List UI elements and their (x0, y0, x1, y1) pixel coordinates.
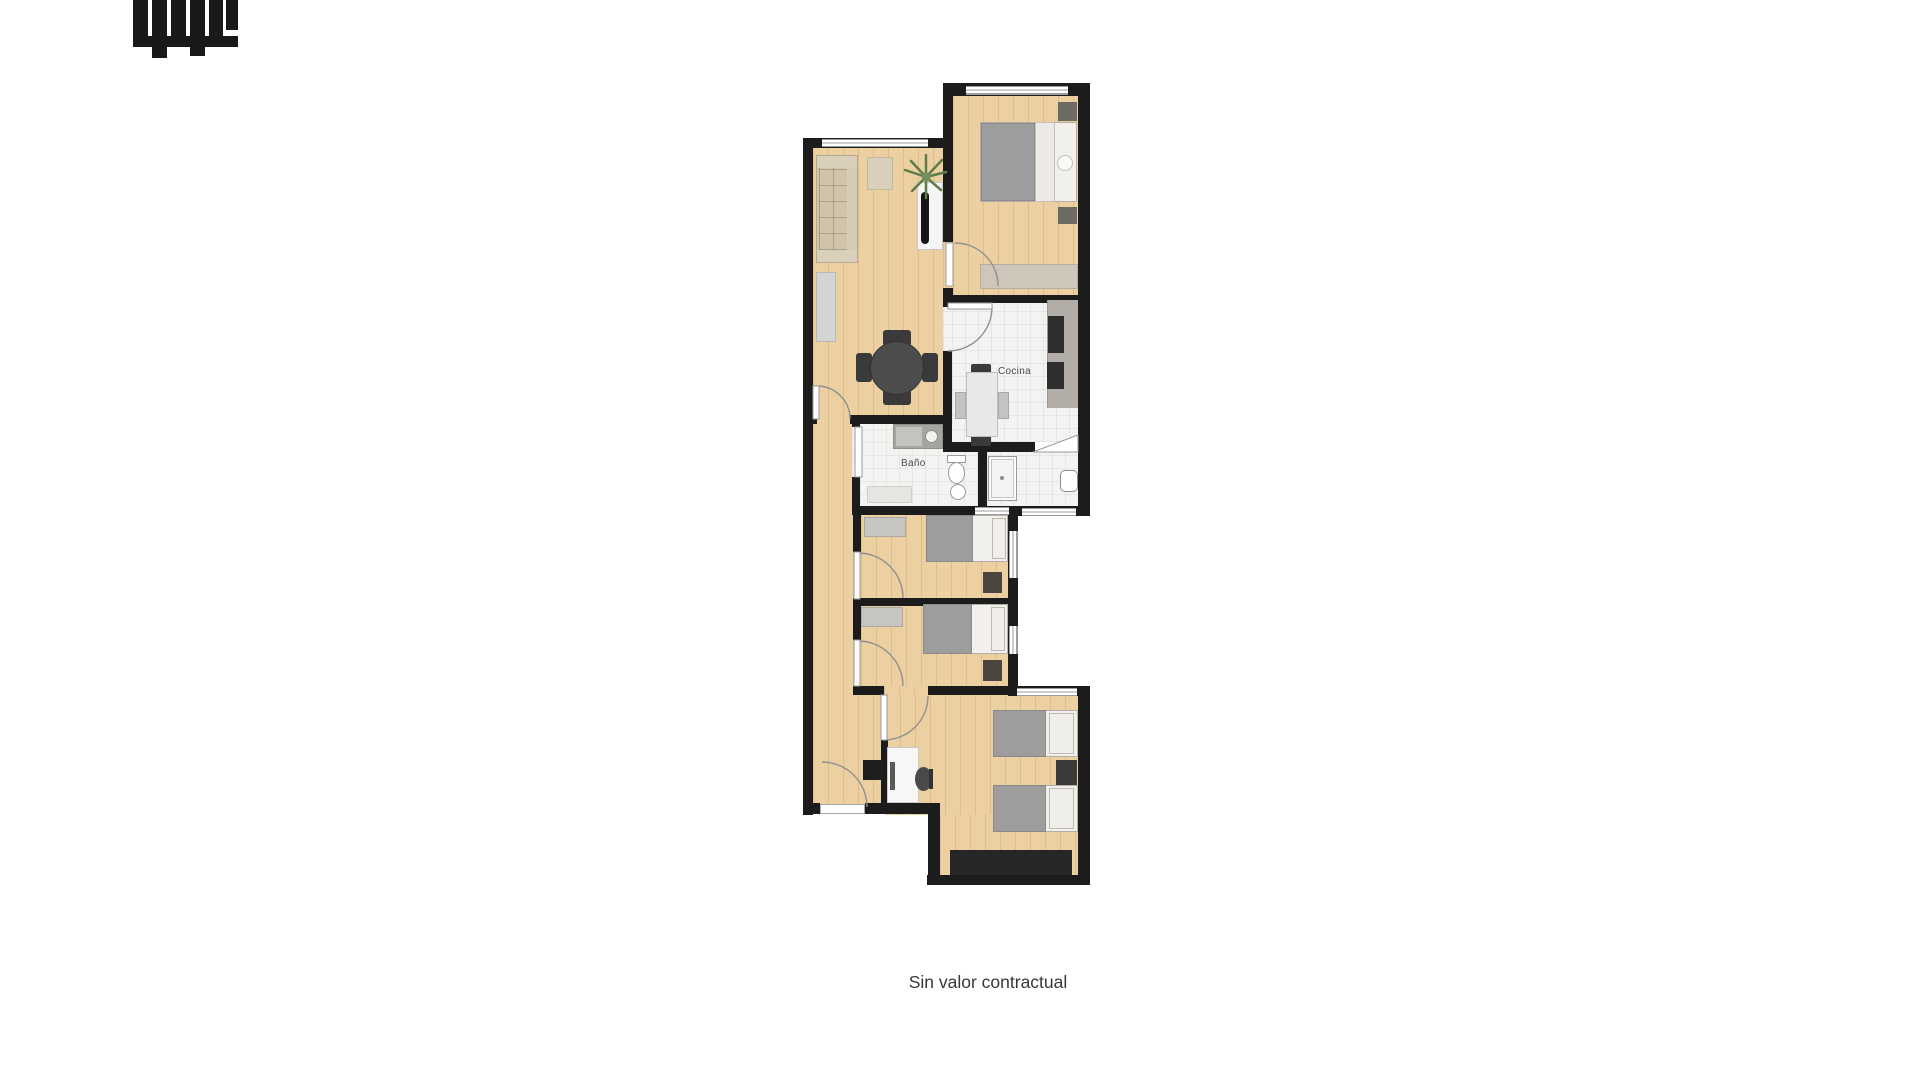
kitchen-table (966, 372, 998, 437)
bed-2-pillow (991, 607, 1005, 651)
logo-bar (133, 36, 238, 47)
kitchen-chair (955, 392, 966, 419)
sofa-armrest (817, 250, 857, 262)
wall-stub-left (928, 803, 940, 885)
bed-1-pillow (992, 518, 1006, 559)
floor-door-gap (853, 552, 861, 599)
wall-right-lower (1078, 686, 1090, 885)
wall-bedroom2-left (853, 606, 861, 640)
wall-left (803, 138, 813, 815)
sofa-cushions (819, 168, 847, 250)
window-bedroom-3 (1017, 688, 1077, 696)
wall-bottom (927, 875, 1090, 885)
nightstand (1058, 102, 1077, 121)
wall-hall-divider (803, 415, 817, 424)
wall-bedroom1-left (853, 506, 861, 552)
wardrobe-shelf (864, 517, 906, 537)
floor-door-gap (943, 307, 952, 351)
window-smallbath (1022, 508, 1076, 516)
floor-door-gap (853, 640, 861, 686)
wall-kitchen-left (943, 303, 952, 307)
window-bedroom-2 (1009, 626, 1018, 654)
toilet (948, 462, 965, 484)
nightstand (1058, 207, 1077, 224)
bed-4-pillow (1049, 788, 1074, 829)
logo-bar (209, 0, 223, 40)
bed-master-blanket (1035, 122, 1055, 202)
bath-mat (867, 486, 912, 503)
kitchen-sink (1047, 362, 1064, 389)
wall-kitchen-bottom-end (1074, 442, 1090, 452)
desk-chair-back (929, 769, 933, 789)
logo-mark (133, 0, 238, 58)
wall-bedroom3-top-right (928, 686, 1010, 695)
bed-1-duvet (926, 515, 973, 562)
floor-door-gap (943, 242, 953, 288)
wall-kitchen-left (943, 351, 952, 450)
wardrobe-shelf (861, 607, 903, 627)
bed-master-pillow (1057, 155, 1073, 171)
sofa (816, 155, 858, 263)
bed-3-duvet (993, 710, 1046, 757)
bed-master-duvet (981, 123, 1035, 201)
floor-door-gap (852, 427, 860, 477)
nightstand (1056, 760, 1077, 786)
bed-4-duvet (993, 785, 1046, 832)
bathroom-vanity-top (896, 427, 922, 446)
tv (921, 192, 929, 244)
sideboard (816, 272, 836, 342)
wall-bathroom-top (852, 415, 943, 424)
hall-cabinet (863, 760, 882, 780)
wall-bathroom-left (852, 415, 860, 427)
kitchen-label: Cocina (998, 366, 1031, 377)
wall-living-bedroom-divider (943, 83, 953, 242)
wall-bathroom-divider (978, 450, 987, 508)
window-bedroom-1 (1009, 531, 1018, 578)
bathroom-label: Baño (901, 458, 926, 469)
wall-bedroom3-top-left (853, 686, 884, 695)
window-smallbath-inner (975, 507, 1009, 515)
dresser (980, 264, 1078, 289)
bathroom-sink (925, 430, 938, 443)
floorplan-page: Cocina Baño (0, 0, 1920, 1080)
wardrobe (950, 850, 1072, 875)
cooktop (1048, 316, 1064, 353)
desk-monitor (890, 762, 895, 790)
caption: Sin valor contractual (838, 972, 1138, 993)
coffee-rug (867, 157, 893, 190)
sofa-back (847, 168, 857, 250)
window-master-bedroom (966, 86, 1068, 95)
bed-2-duvet (923, 604, 972, 654)
logo-bar (152, 0, 167, 58)
small-bathroom-toilet (1060, 470, 1078, 492)
bidet (950, 484, 966, 500)
nightstand (983, 572, 1002, 593)
wall-entry-left (803, 803, 820, 814)
nightstand (983, 660, 1002, 681)
shower-drain (1000, 476, 1004, 480)
wall-entry-right (865, 803, 940, 814)
logo-bar (190, 0, 205, 56)
kitchen-chair (998, 392, 1009, 419)
dining-table (870, 341, 924, 395)
sofa-armrest (817, 156, 857, 168)
logo-bar (226, 0, 238, 30)
floor-door-gap (884, 686, 928, 695)
dining-chair (922, 353, 938, 382)
bed-3-pillow (1049, 713, 1074, 754)
window-living (822, 139, 928, 147)
entry-door-threshold (820, 804, 865, 814)
